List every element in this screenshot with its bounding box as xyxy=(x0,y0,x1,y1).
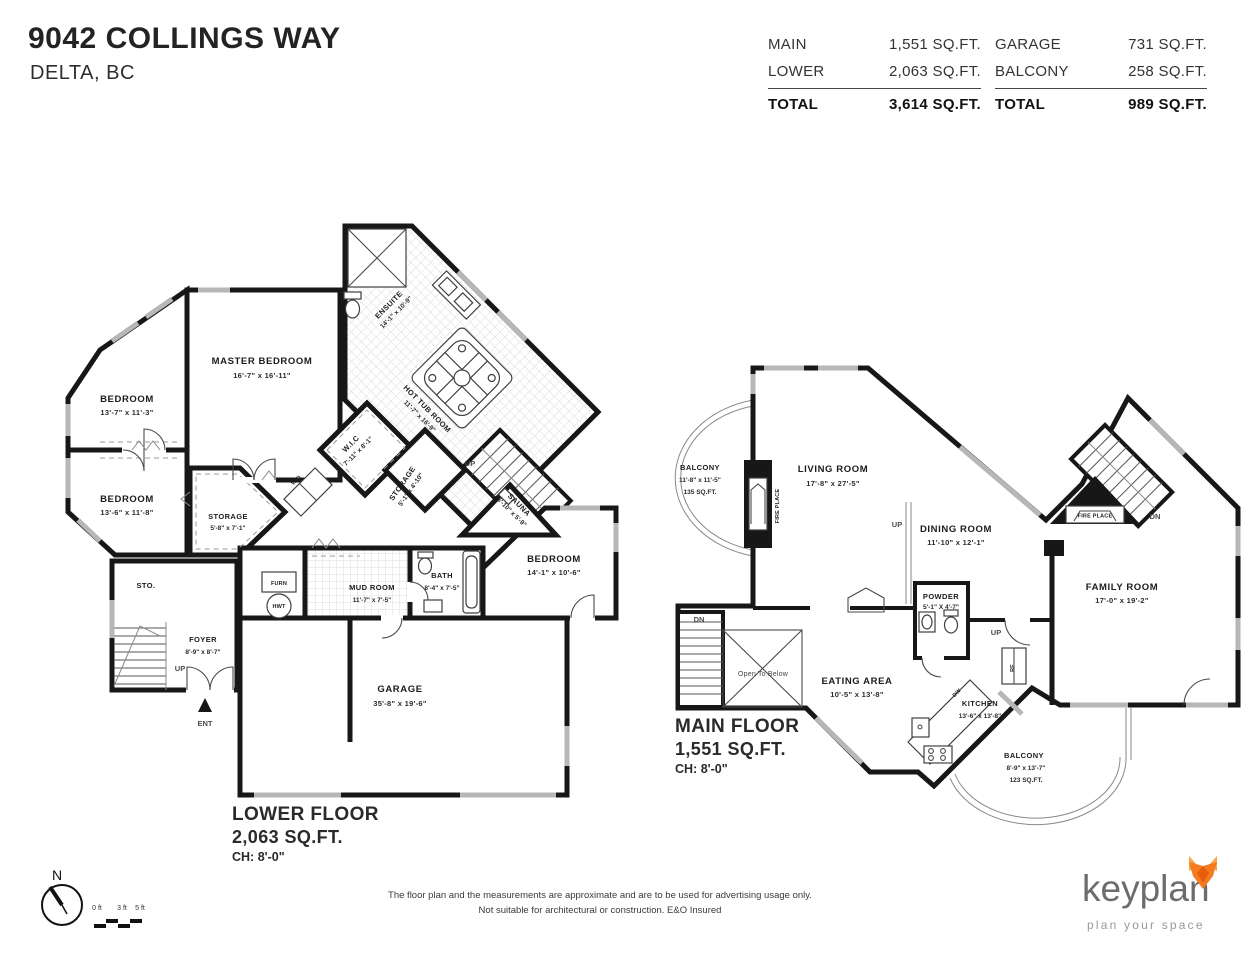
room-label: BALCONY xyxy=(680,463,720,472)
room-label: BEDROOM xyxy=(527,554,581,565)
toilet-icon xyxy=(344,292,361,318)
room-dims: 11'-7" x 7'-5" xyxy=(353,597,392,604)
entrance-arrow-icon xyxy=(198,698,212,712)
fireplace-label: FIRE PLACE xyxy=(775,489,781,524)
area-label: MAIN xyxy=(768,31,807,58)
room-dims: 11'-10" x 12'-1" xyxy=(927,538,985,547)
area-label: GARAGE xyxy=(995,31,1061,58)
area-value: 731 SQ.FT. xyxy=(1128,31,1207,58)
bath-sink-icon xyxy=(424,600,442,612)
up-label: UP xyxy=(175,664,185,673)
room-label: MUD ROOM xyxy=(349,583,395,592)
room-dims: 17'-0" x 19'-2" xyxy=(1095,596,1149,605)
area-table-right: GARAGE731 SQ.FT. BALCONY258 SQ.FT. TOTAL… xyxy=(995,31,1207,117)
room-master xyxy=(187,290,340,480)
fireplace-label: FIRE PLACE xyxy=(1078,514,1113,520)
area-table-left: MAIN1,551 SQ.FT. LOWER2,063 SQ.FT. TOTAL… xyxy=(768,31,981,117)
disclaimer-line1: The floor plan and the measurements are … xyxy=(380,888,820,903)
page-title: 9042 COLLINGS WAY xyxy=(28,22,340,56)
area-total-label: TOTAL xyxy=(768,93,818,117)
wall-chunk xyxy=(1044,540,1064,556)
room-label: STORAGE xyxy=(208,512,248,521)
furn-label: FURN xyxy=(271,581,287,587)
area-value: 258 SQ.FT. xyxy=(1128,58,1207,85)
scale-bar-icon xyxy=(94,921,142,926)
brand-tagline: plan your space xyxy=(1087,918,1205,932)
area-label: LOWER xyxy=(768,58,825,85)
lower-floor-caption: LOWER FLOOR 2,063 SQ.FT. CH: 8'-0" xyxy=(232,803,379,864)
area-label: BALCONY xyxy=(995,58,1069,85)
floor-title: MAIN FLOOR xyxy=(675,715,799,738)
dn-label: DN xyxy=(694,615,705,624)
fox-logo-icon xyxy=(1186,855,1220,895)
room-area: 135 SQ.FT. xyxy=(684,489,717,496)
room-dims: 11'-8" x 11'-5" xyxy=(679,477,721,484)
room-dims: 35'-8" x 19'-6" xyxy=(373,699,427,708)
room-bedroom1 xyxy=(68,290,187,450)
dn-label: DN xyxy=(1150,512,1161,521)
fridge-label: RF xyxy=(1010,664,1016,672)
scale-three: 3 ft xyxy=(117,905,127,912)
floor-area: 1,551 SQ.FT. xyxy=(675,738,799,760)
open-to-below-label: Open To Below xyxy=(738,671,789,678)
up-label: UP xyxy=(991,628,1001,637)
north-scale-group: N 0 ft 3 ft 5 ft xyxy=(30,860,170,940)
room-area: 123 SQ.FT. xyxy=(1010,777,1043,784)
floor-ceiling: CH: 8'-0" xyxy=(232,850,379,864)
room-dims: 8'-4" x 7'-5" xyxy=(424,585,459,592)
north-label: N xyxy=(52,867,62,883)
disclaimer-line2: Not suitable for architectural or constr… xyxy=(380,903,820,918)
room-label: KITCHEN xyxy=(962,699,998,708)
room-label: STO. xyxy=(137,581,156,590)
page-subtitle: DELTA, BC xyxy=(30,62,135,85)
main-floor-caption: MAIN FLOOR 1,551 SQ.FT. CH: 8'-0" xyxy=(675,715,799,776)
room-dims: 16'-7" x 16'-11" xyxy=(233,371,291,380)
floor-ceiling: CH: 8'-0" xyxy=(675,762,799,776)
room-label: FOYER xyxy=(189,635,217,644)
room-label: LIVING ROOM xyxy=(798,464,868,475)
area-total-value: 989 SQ.FT. xyxy=(1128,93,1207,117)
room-dims: 14'-1" x 10'-6" xyxy=(527,568,581,577)
room-label: MASTER BEDROOM xyxy=(212,356,313,367)
area-total-value: 3,614 SQ.FT. xyxy=(889,93,981,117)
room-dims: 13'-6" x 13'-8" xyxy=(959,713,1002,720)
up-label: UP xyxy=(465,459,475,468)
scale-zero: 0 ft xyxy=(92,905,102,912)
room-dims: 5'-8" x 7'-1" xyxy=(210,525,245,532)
hwt-label: HWT xyxy=(272,604,286,610)
floor-area: 2,063 SQ.FT. xyxy=(232,826,379,848)
room-dims: 5'-1" X 4'-7" xyxy=(923,604,959,611)
room-label: BEDROOM xyxy=(100,494,154,505)
fireplace-living-icon xyxy=(744,460,772,548)
room-dims: 10'-5" x 13'-8" xyxy=(830,690,884,699)
room-label: BEDROOM xyxy=(100,394,154,405)
up-label: UP xyxy=(892,520,902,529)
room-label: GARAGE xyxy=(377,684,422,695)
room-label: DINING ROOM xyxy=(920,524,992,535)
room-label: POWDER xyxy=(923,592,959,601)
room-label: FAMILY ROOM xyxy=(1086,582,1159,593)
bathtub-icon xyxy=(463,551,480,613)
compass-needle-icon xyxy=(50,887,62,905)
area-total-label: TOTAL xyxy=(995,93,1045,117)
floor-plan-sheet: 9042 COLLINGS WAY DELTA, BC MAIN1,551 SQ… xyxy=(0,0,1242,960)
scale-five: 5 ft xyxy=(135,905,145,912)
room-dims: 8'-9" x 13'-7" xyxy=(1007,765,1046,772)
disclaimer: The floor plan and the measurements are … xyxy=(380,888,820,918)
room-label: BATH xyxy=(431,571,453,580)
room-dims: 13'-6" x 11'-8" xyxy=(100,508,153,517)
room-dims: 17'-8" x 27'-5" xyxy=(806,479,860,488)
shower-icon xyxy=(348,229,406,287)
room-label: EATING AREA xyxy=(822,676,893,687)
room-label: BALCONY xyxy=(1004,751,1044,760)
room-dims: 8'-9" x 8'-7" xyxy=(185,649,220,656)
lower-floor-plan: W/D xyxy=(40,218,640,858)
area-value: 2,063 SQ.FT. xyxy=(889,58,981,85)
ent-label: ENT xyxy=(198,719,213,728)
area-value: 1,551 SQ.FT. xyxy=(889,31,981,58)
room-dims: 13'-7" x 11'-3" xyxy=(100,408,153,417)
floor-title: LOWER FLOOR xyxy=(232,803,379,826)
